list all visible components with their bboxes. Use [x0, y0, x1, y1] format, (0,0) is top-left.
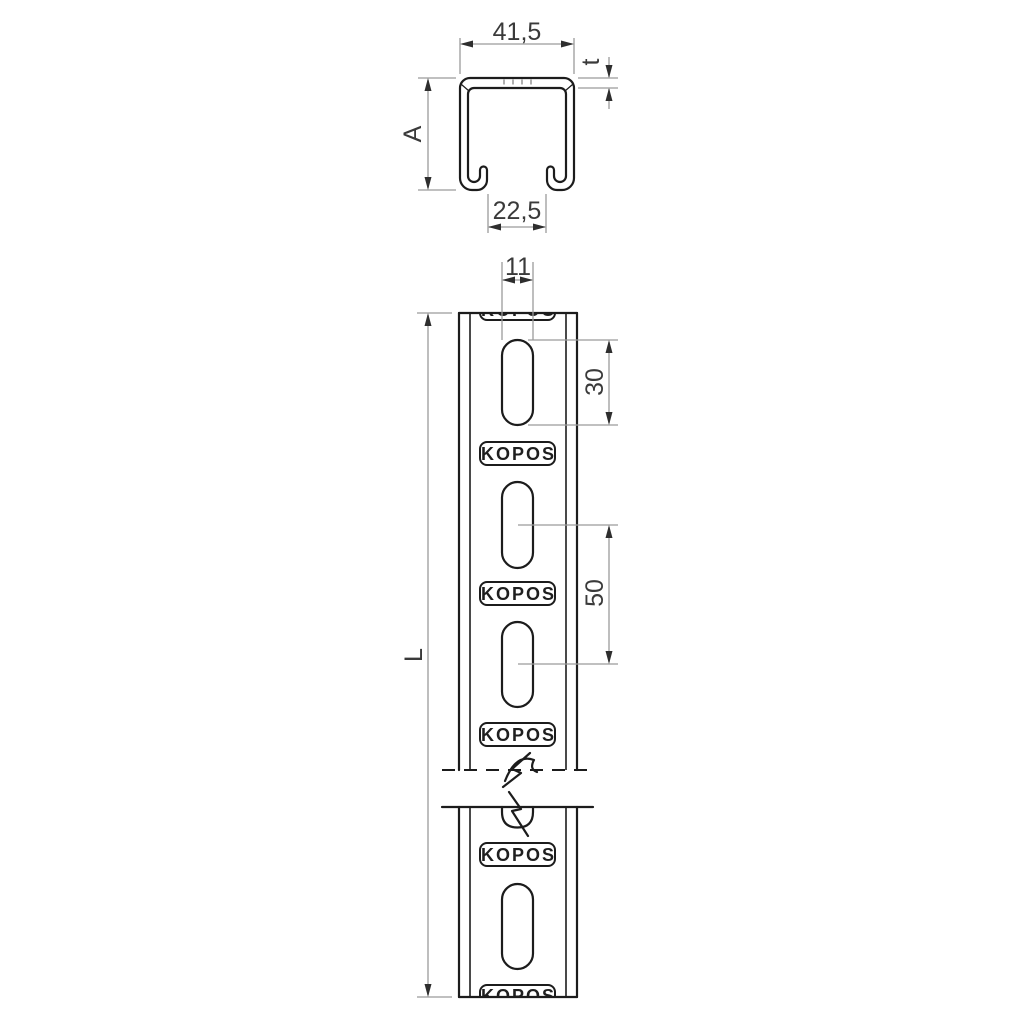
arrowhead	[606, 412, 613, 425]
bend-line-left	[462, 85, 470, 92]
svg-text:KOPOS: KOPOS	[481, 725, 556, 745]
dim-profile-opening: 22,5	[488, 194, 546, 233]
brand-logo-partial-top: KOPOS	[480, 298, 556, 320]
dim-slot-length-label: 30	[581, 368, 609, 396]
break-symbol-lower	[509, 792, 528, 836]
arrowhead	[425, 984, 432, 997]
dim-slot-length: 30	[528, 340, 618, 425]
strut-channel-drawing: 41,5 t A 22,5	[0, 0, 1024, 1024]
arrowhead	[606, 651, 613, 664]
arrowhead	[460, 41, 473, 48]
arrowhead	[606, 65, 613, 78]
dim-slot-width: 11	[502, 253, 533, 340]
arrowhead	[425, 313, 432, 326]
arrowhead	[425, 78, 432, 91]
svg-text:KOPOS: KOPOS	[481, 444, 556, 464]
dim-opening-label: 22,5	[493, 197, 542, 225]
dim-slot-width-label: 11	[505, 253, 531, 281]
arrowhead	[606, 525, 613, 538]
svg-text:KOPOS: KOPOS	[481, 300, 556, 320]
dim-total-length-label: L	[400, 648, 428, 662]
dim-profile-width: 41,5	[460, 18, 574, 74]
dim-thickness-label: t	[577, 58, 605, 65]
brand-logo-3: KOPOS	[480, 723, 556, 746]
arrowhead	[425, 177, 432, 190]
brand-logo-1: KOPOS	[480, 442, 556, 465]
svg-text:KOPOS: KOPOS	[481, 584, 556, 604]
dim-wall-thickness: t	[577, 57, 618, 109]
svg-text:KOPOS: KOPOS	[481, 845, 556, 865]
dim-height-label: A	[399, 125, 427, 142]
front-view: KOPOS KOPOS KOPOS KOPOS	[400, 253, 618, 1007]
slot-4	[502, 884, 533, 969]
dim-slot-pitch-label: 50	[581, 579, 609, 607]
dim-total-length: L	[400, 313, 452, 997]
dim-profile-height: A	[399, 78, 456, 190]
drawing-page: 41,5 t A 22,5	[0, 0, 1024, 1024]
slot-1	[502, 340, 533, 425]
brand-logo-2: KOPOS	[480, 582, 556, 605]
brand-logo-4: KOPOS	[480, 843, 556, 866]
bend-line-right	[565, 85, 573, 92]
front-view-upper-piece: KOPOS KOPOS KOPOS KOPOS	[442, 298, 593, 787]
arrowhead	[606, 88, 613, 101]
channel-profile-outline	[460, 78, 574, 190]
embossing-ticks	[504, 80, 531, 85]
dim-width-label: 41,5	[493, 18, 542, 46]
arrowhead	[606, 340, 613, 353]
cross-section-view: 41,5 t A 22,5	[399, 18, 618, 233]
front-view-lower-piece: KOPOS KOPOS	[442, 792, 593, 1007]
arrowhead	[561, 41, 574, 48]
